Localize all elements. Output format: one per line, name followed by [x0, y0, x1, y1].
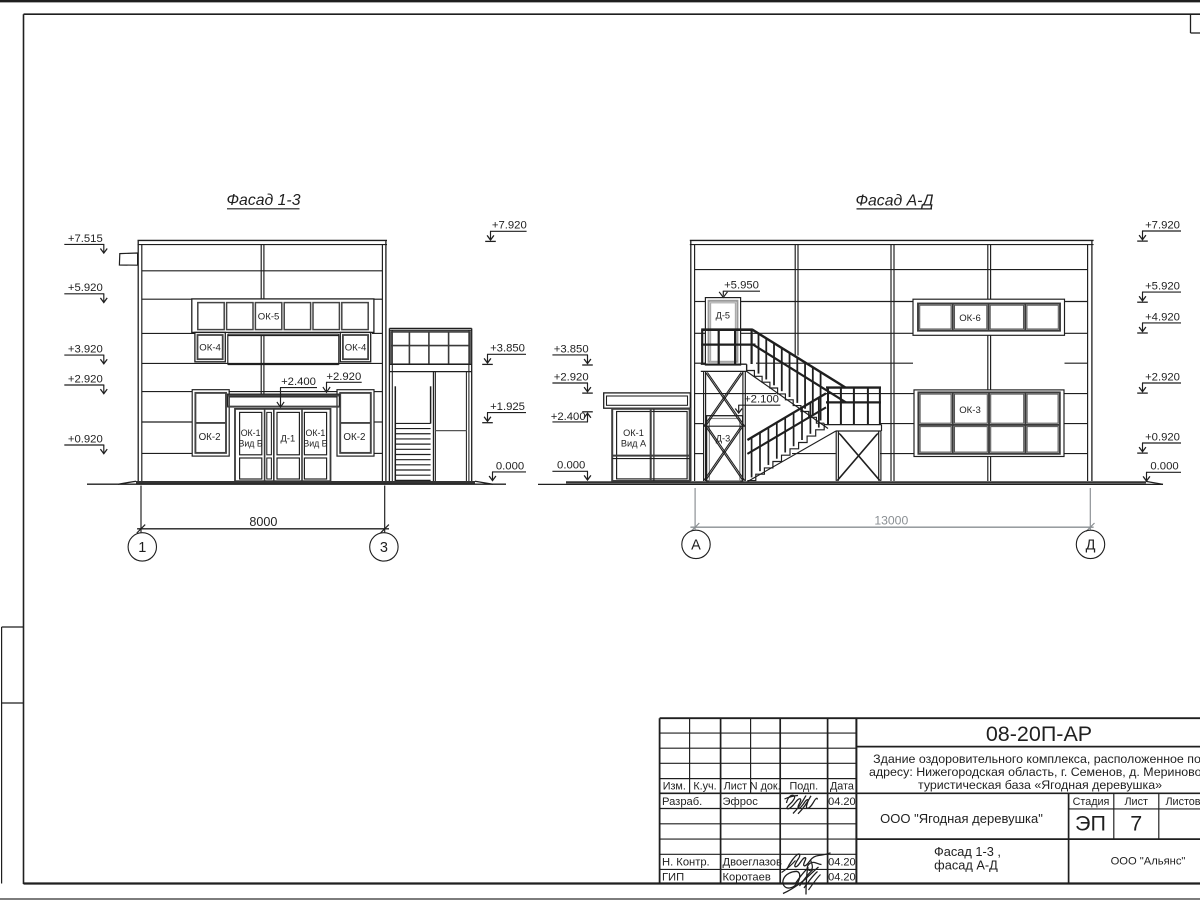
svg-text:+7.920: +7.920	[492, 220, 527, 232]
svg-text:А: А	[691, 538, 701, 554]
svg-text:ОК-1: ОК-1	[623, 428, 644, 438]
svg-text:ОК-3: ОК-3	[959, 405, 981, 416]
svg-text:+0.920: +0.920	[68, 433, 103, 445]
svg-text:+2.920: +2.920	[68, 373, 103, 385]
svg-text:+2.400: +2.400	[551, 411, 586, 423]
svg-text:Коротаев: Коротаев	[723, 871, 771, 883]
svg-text:+7.920: +7.920	[1145, 219, 1180, 231]
svg-text:Д: Д	[1086, 538, 1096, 554]
svg-text:Изм.: Изм.	[663, 781, 686, 793]
svg-text:ОК-1: ОК-1	[241, 428, 261, 438]
svg-text:13000: 13000	[874, 514, 908, 528]
svg-text:Н. Контр.: Н. Контр.	[662, 857, 710, 869]
svg-text:8000: 8000	[249, 515, 277, 529]
svg-text:N док.: N док.	[750, 781, 781, 793]
svg-text:ОК-5: ОК-5	[258, 312, 280, 323]
svg-text:04.20: 04.20	[828, 796, 856, 808]
svg-text:3: 3	[380, 540, 388, 556]
svg-text:туристическая база «Ягодная де: туристическая база «Ягодная деревушка»	[918, 778, 1162, 792]
svg-text:+2.100: +2.100	[744, 394, 779, 406]
svg-text:+5.920: +5.920	[1145, 281, 1180, 293]
svg-text:Стадия: Стадия	[1073, 796, 1110, 808]
svg-text:+2.920: +2.920	[1145, 371, 1180, 383]
svg-text:Листов: Листов	[1165, 796, 1200, 808]
svg-text:Лист: Лист	[1124, 796, 1148, 808]
svg-text:Лист: Лист	[724, 781, 748, 793]
svg-text:Фасад А-Д: Фасад А-Д	[855, 192, 933, 209]
svg-text:+0.920: +0.920	[1145, 431, 1180, 443]
svg-text:+5.920: +5.920	[68, 282, 103, 294]
svg-text:1: 1	[138, 540, 146, 556]
svg-text:08-20П-АР: 08-20П-АР	[986, 722, 1092, 746]
svg-text:Подп.: Подп.	[789, 781, 818, 793]
svg-text:+1.925: +1.925	[490, 401, 525, 413]
svg-text:ОК-1: ОК-1	[306, 428, 326, 438]
svg-text:ЭП: ЭП	[1075, 812, 1106, 836]
svg-text:04.20: 04.20	[828, 871, 856, 883]
svg-text:ОК-4: ОК-4	[199, 342, 221, 353]
svg-text:0.000: 0.000	[496, 460, 524, 472]
svg-text:Д-1: Д-1	[281, 433, 296, 444]
svg-text:Д-5: Д-5	[716, 310, 730, 320]
svg-text:ОК-6: ОК-6	[959, 313, 981, 324]
svg-text:Вид Б: Вид Б	[239, 439, 263, 449]
svg-text:Эфрос: Эфрос	[723, 796, 759, 808]
svg-text:Фасад 1-3: Фасад 1-3	[227, 192, 301, 209]
svg-text:+2.920: +2.920	[326, 371, 361, 383]
svg-text:адресу: Нижегородская область,: адресу: Нижегородская область, г. Семено…	[869, 765, 1200, 779]
svg-text:Вид Б: Вид Б	[303, 439, 327, 449]
svg-text:ОК-2: ОК-2	[343, 432, 365, 443]
svg-text:+3.850: +3.850	[490, 343, 525, 355]
svg-text:Разраб.: Разраб.	[662, 796, 702, 808]
svg-text:Дата: Дата	[830, 781, 854, 793]
svg-text:К.уч.: К.уч.	[693, 781, 716, 793]
svg-text:+3.850: +3.850	[554, 343, 589, 355]
svg-text:+3.920: +3.920	[68, 344, 103, 356]
svg-text:ОК-4: ОК-4	[345, 342, 367, 353]
svg-text:ОК-2: ОК-2	[199, 432, 221, 443]
svg-text:Двоеглазов: Двоеглазов	[723, 857, 783, 869]
svg-text:+7.515: +7.515	[68, 233, 103, 245]
svg-text:+2.400: +2.400	[281, 376, 316, 388]
svg-text:+2.920: +2.920	[554, 371, 589, 383]
svg-text:ГИП: ГИП	[662, 871, 684, 883]
svg-text:фасад А-Д: фасад А-Д	[934, 858, 998, 873]
svg-text:ООО "Ягодная деревушка": ООО "Ягодная деревушка"	[880, 811, 1043, 826]
svg-text:7: 7	[1130, 812, 1142, 836]
svg-text:0.000: 0.000	[557, 460, 585, 472]
svg-text:Здание оздоровительного компле: Здание оздоровительного комплекса, распо…	[873, 752, 1200, 766]
svg-text:0.000: 0.000	[1150, 461, 1178, 473]
svg-text:Вид А: Вид А	[621, 439, 647, 449]
svg-text:04.20: 04.20	[828, 857, 856, 869]
svg-text:ООО "Альянс": ООО "Альянс"	[1111, 856, 1186, 868]
svg-text:+4.920: +4.920	[1145, 311, 1180, 323]
svg-text:+5.950: +5.950	[724, 280, 759, 292]
